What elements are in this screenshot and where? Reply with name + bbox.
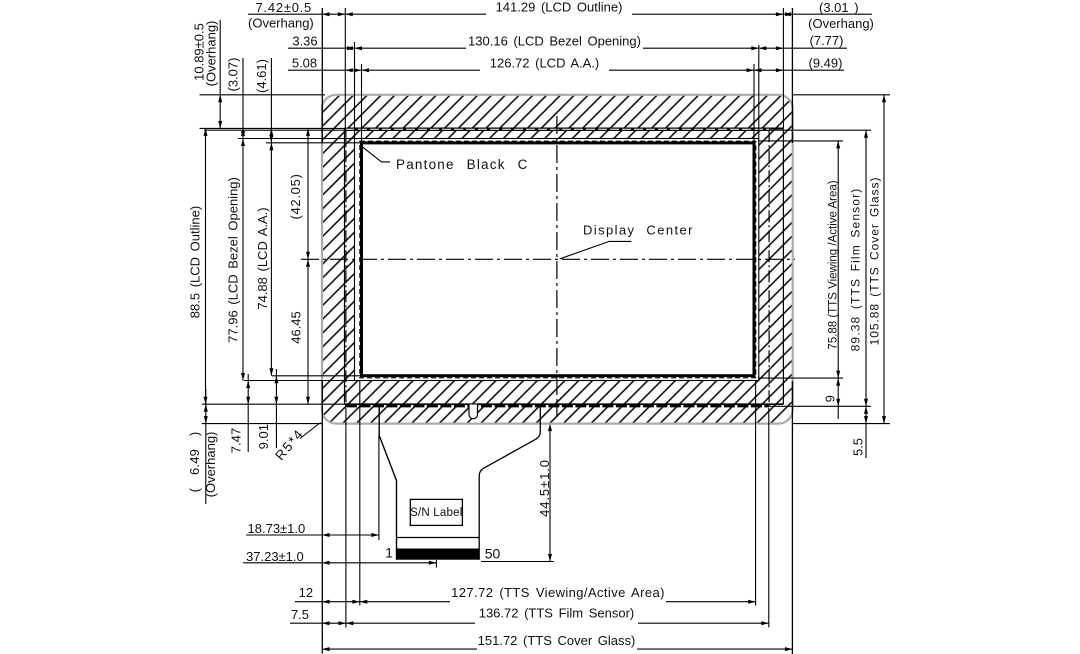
svg-text:( 6.49 ): ( 6.49 ) [187, 432, 202, 493]
svg-text:(42.05): (42.05) [288, 173, 303, 219]
svg-text:(3.07): (3.07) [226, 58, 241, 92]
svg-text:136.72 (TTS Film Sensor): 136.72 (TTS Film Sensor) [479, 606, 635, 621]
svg-text:7.5: 7.5 [291, 607, 309, 622]
svg-text:(3.01 ): (3.01 ) [819, 0, 859, 15]
svg-text:S/N Label: S/N Label [410, 507, 462, 519]
svg-text:88.5 (LCD Outline): 88.5 (LCD Outline) [188, 206, 203, 318]
svg-text:37.23±1.0: 37.23±1.0 [246, 549, 304, 564]
svg-text:46.45: 46.45 [289, 311, 304, 344]
svg-text:(Overhang): (Overhang) [808, 16, 874, 31]
svg-text:9: 9 [823, 395, 838, 402]
svg-text:44.5±1.0: 44.5±1.0 [537, 459, 552, 517]
svg-text:(4.61): (4.61) [254, 59, 269, 93]
svg-text:5.5: 5.5 [851, 438, 866, 456]
svg-text:141.29 (LCD Outline): 141.29 (LCD Outline) [496, 0, 623, 15]
svg-text:(7.77): (7.77) [810, 33, 844, 48]
svg-text:130.16 (LCD Bezel Opening): 130.16 (LCD Bezel Opening) [468, 34, 641, 49]
svg-text:9.01: 9.01 [256, 424, 271, 449]
svg-text:127.72 (TTS Viewing/Active Are: 127.72 (TTS Viewing/Active Area) [451, 585, 665, 600]
svg-text:7.47: 7.47 [229, 428, 244, 453]
svg-text:89.38 (TTS Film Sensor): 89.38 (TTS Film Sensor) [849, 188, 863, 352]
svg-text:151.72 (TTS Cover Glass): 151.72 (TTS Cover Glass) [478, 633, 636, 648]
svg-text:75.88 (TTS Viewing /Active Are: 75.88 (TTS Viewing /Active Area) [828, 180, 840, 349]
svg-text:50: 50 [485, 546, 501, 562]
svg-text:3.36: 3.36 [292, 34, 317, 49]
svg-text:R5*4: R5*4 [272, 426, 307, 463]
svg-text:77.96 (LCD Bezel Opening): 77.96 (LCD Bezel Opening) [226, 177, 241, 343]
svg-text:Display Center: Display Center [583, 223, 694, 238]
svg-text:(Overhang): (Overhang) [204, 21, 219, 87]
svg-text:105.88 (TTS Cover Glass): 105.88 (TTS Cover Glass) [868, 177, 882, 346]
svg-text:18.73±1.0: 18.73±1.0 [248, 521, 306, 536]
svg-text:(Overhang): (Overhang) [248, 16, 314, 31]
svg-text:Pantone Black C: Pantone Black C [396, 157, 529, 172]
svg-text:(Overhang): (Overhang) [203, 432, 218, 498]
svg-text:74.88 (LCD A.A.): 74.88 (LCD A.A.) [255, 207, 270, 309]
svg-text:1: 1 [385, 545, 393, 561]
svg-text:12: 12 [299, 585, 313, 600]
svg-text:126.72 (LCD A.A.): 126.72 (LCD A.A.) [490, 56, 600, 71]
svg-text:7.42±0.5: 7.42±0.5 [256, 0, 313, 15]
svg-text:(9.49): (9.49) [809, 56, 843, 71]
svg-text:5.08: 5.08 [292, 56, 317, 71]
